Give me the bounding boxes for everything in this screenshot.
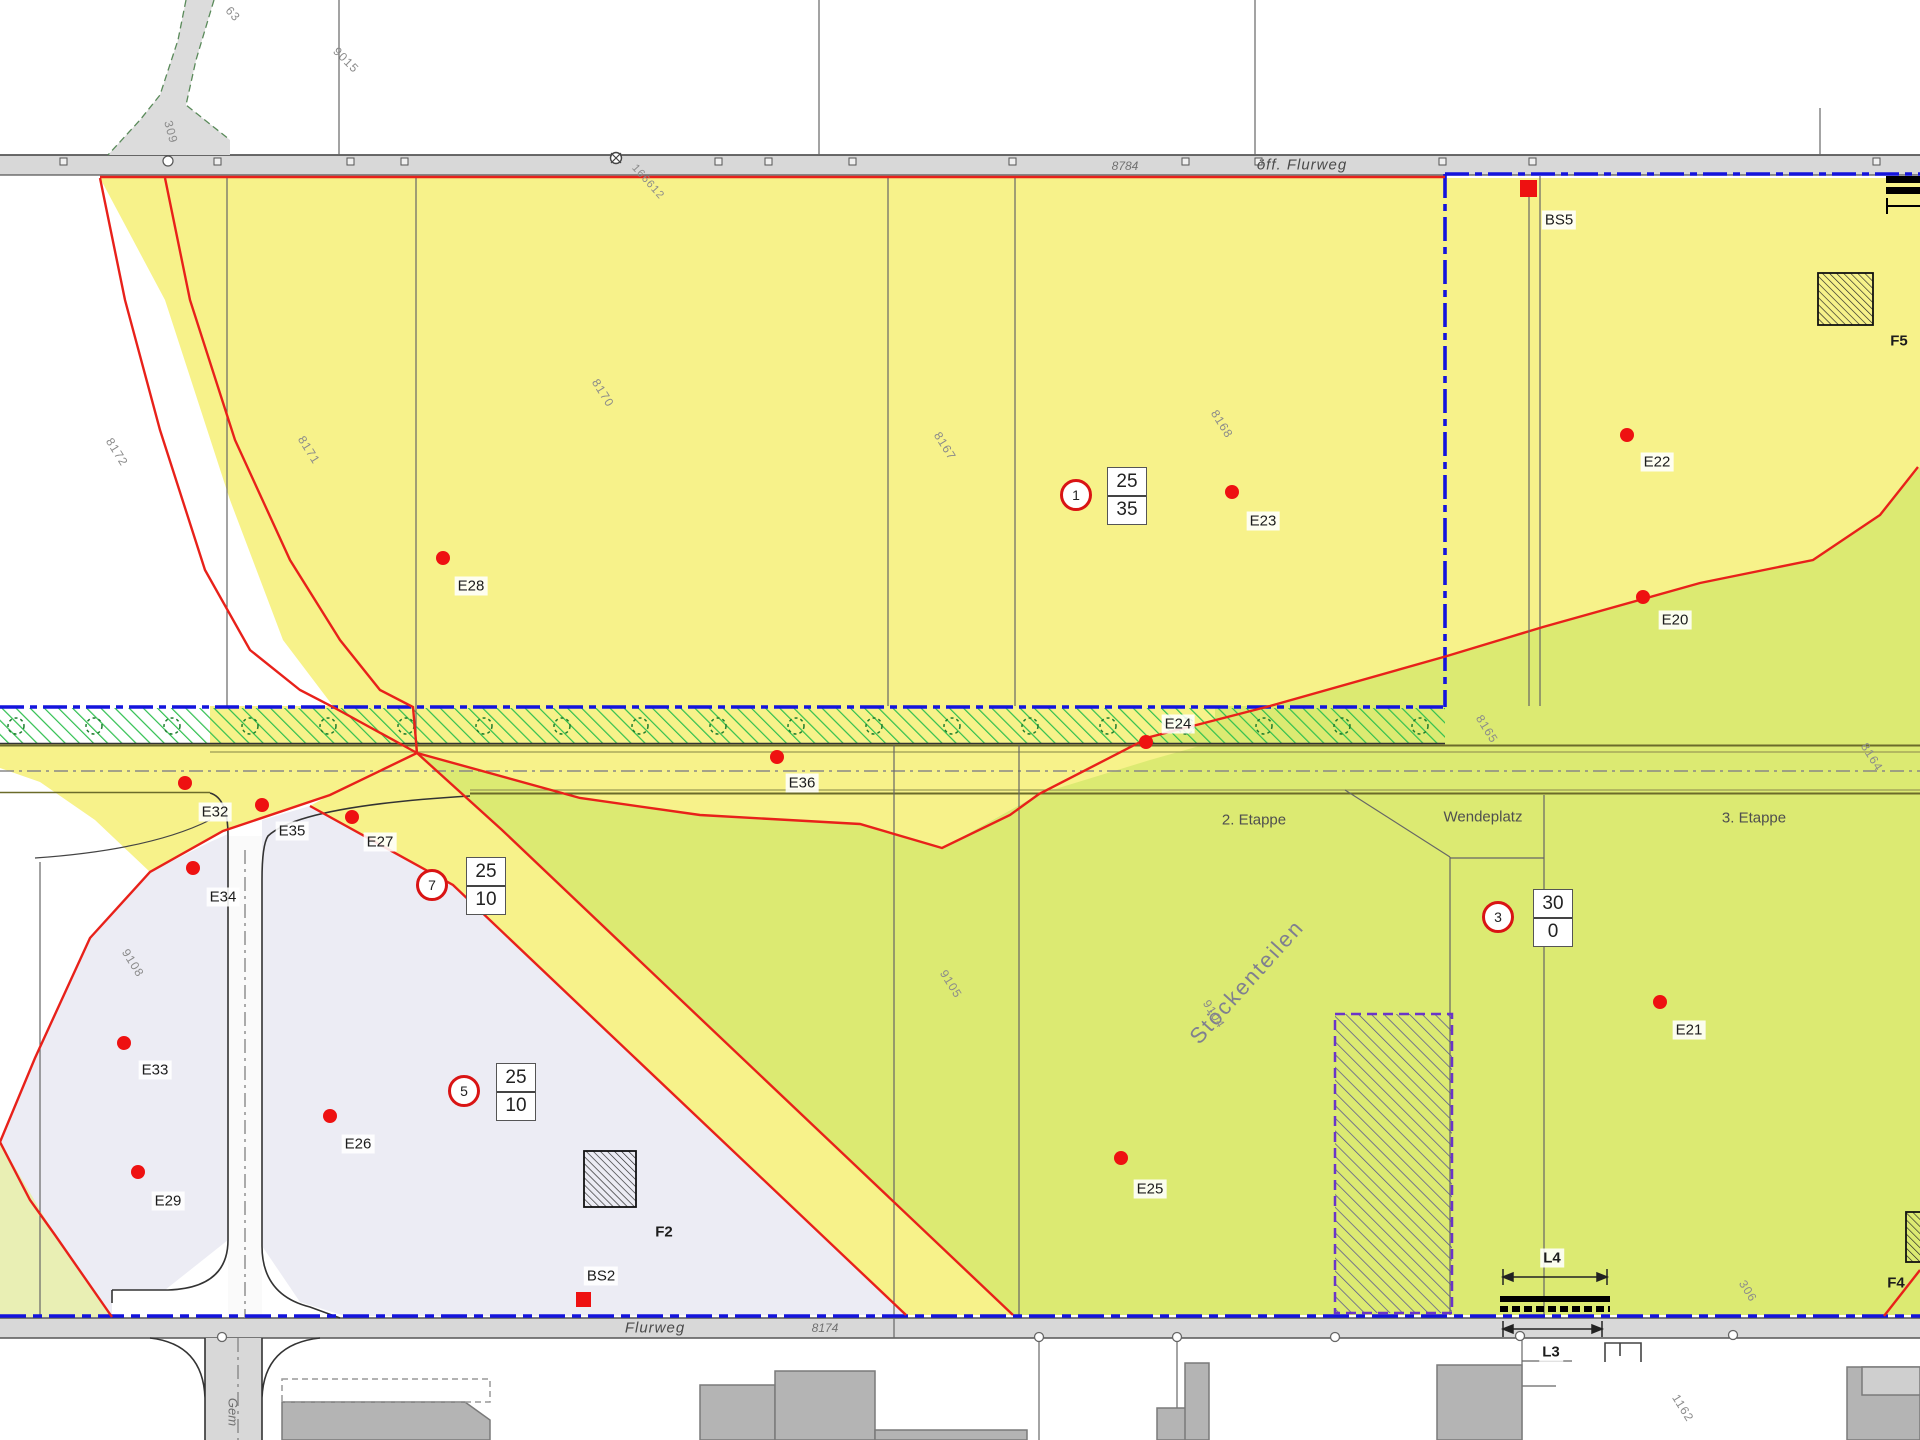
e34-label: E34 (207, 888, 240, 907)
e22-label: E22 (1641, 453, 1674, 472)
e35-label: E35 (276, 822, 309, 841)
sign-5-box: 25 10 (496, 1063, 536, 1121)
sign-1-bottom: 35 (1108, 497, 1146, 524)
e23-dot (1225, 485, 1239, 499)
sign-3-box: 30 0 (1533, 889, 1573, 947)
f4-label: F4 (1887, 1275, 1905, 1292)
sign-1-top: 25 (1108, 468, 1146, 497)
e36-label: E36 (786, 774, 819, 793)
sign-1-circle: 1 (1060, 479, 1092, 511)
e27-label: E27 (364, 833, 397, 852)
bottom-road-parcel: 8174 (812, 1321, 839, 1335)
l4-label: L4 (1540, 1249, 1564, 1268)
e22-dot (1620, 428, 1634, 442)
e32-label: E32 (199, 803, 232, 822)
f2-square (584, 1151, 636, 1207)
sign-5-circle: 5 (448, 1075, 480, 1107)
bs5-square (1520, 180, 1537, 197)
e29-label: E29 (152, 1192, 185, 1211)
e34-dot (186, 861, 200, 875)
e21-dot (1653, 995, 1667, 1009)
e26-label: E26 (342, 1135, 375, 1154)
survey-point-icon (611, 153, 622, 164)
e26-dot (323, 1109, 337, 1123)
e24-label: E24 (1162, 715, 1195, 734)
zoning-plan-map: öff. Flurweg 8784 Flurweg 8174 Gem 16661… (0, 0, 1920, 1440)
sign-5-bottom: 10 (497, 1093, 535, 1120)
e21-label: E21 (1673, 1021, 1706, 1040)
sign-3-top: 30 (1534, 890, 1572, 919)
e20-label: E20 (1659, 611, 1692, 630)
e23-label: E23 (1247, 512, 1280, 531)
e25-label: E25 (1134, 1180, 1167, 1199)
e24-dot (1139, 735, 1153, 749)
e29-dot (131, 1165, 145, 1179)
e36-dot (770, 750, 784, 764)
stage2-label: 2. Etappe (1222, 812, 1286, 829)
reserved-area-hatched (1335, 1014, 1452, 1313)
sign-7-top: 25 (467, 858, 505, 887)
f5-label: F5 (1890, 333, 1908, 350)
e28-dot (436, 551, 450, 565)
map-canvas (0, 0, 1920, 1440)
sign-3-circle: 3 (1482, 901, 1514, 933)
sign-5-top: 25 (497, 1064, 535, 1093)
bs2-square (576, 1292, 591, 1307)
e32-dot (178, 776, 192, 790)
e33-label: E33 (139, 1061, 172, 1080)
top-road-parcel: 8784 (1112, 159, 1139, 173)
planting-strip (0, 708, 1445, 744)
sign-7-bottom: 10 (467, 887, 505, 914)
sign-7-box: 25 10 (466, 857, 506, 915)
side-road-name: Gem (226, 1398, 241, 1426)
bs5-label: BS5 (1542, 211, 1576, 230)
e33-dot (117, 1036, 131, 1050)
top-road-name: öff. Flurweg (1257, 157, 1347, 174)
sign-1-box: 25 35 (1107, 467, 1147, 525)
sign-7-circle: 7 (416, 869, 448, 901)
e27-dot (345, 810, 359, 824)
turning-area-label: Wendeplatz (1444, 809, 1523, 826)
l3-label: L3 (1539, 1343, 1563, 1362)
bs2-label: BS2 (584, 1267, 618, 1286)
top-road (0, 155, 1920, 175)
e35-dot (255, 798, 269, 812)
bottom-road-name: Flurweg (625, 1320, 685, 1337)
f5-square (1818, 273, 1873, 325)
e20-dot (1636, 590, 1650, 604)
sign-3-bottom: 0 (1534, 919, 1572, 946)
f4-square (1906, 1212, 1920, 1262)
e28-label: E28 (455, 577, 488, 596)
e25-dot (1114, 1151, 1128, 1165)
stage3-label: 3. Etappe (1722, 810, 1786, 827)
f2-label: F2 (655, 1224, 673, 1241)
